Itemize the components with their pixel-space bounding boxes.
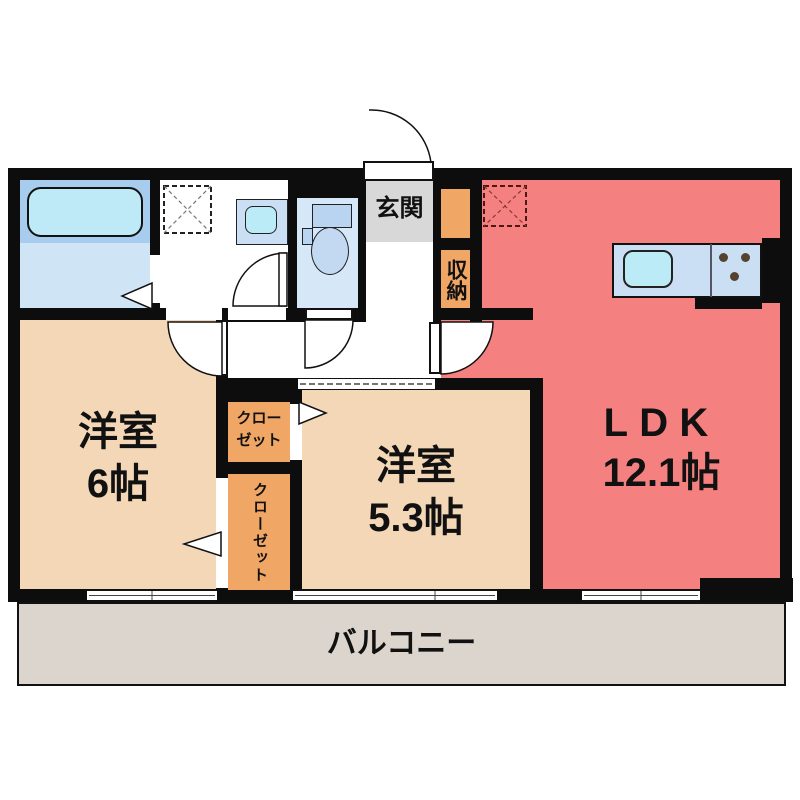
ldk-size: 12.1帖	[543, 448, 780, 498]
washing-machine-space	[164, 186, 211, 233]
door-arc-washroom	[233, 253, 286, 306]
door-arc-entrance	[369, 110, 431, 163]
floor-plan: 玄関 収納 クロー ゼット クローゼット 洋室 6帖 洋室 5.3帖 LDK 1…	[0, 0, 800, 800]
bedroom53-name: 洋室	[302, 440, 530, 492]
entrance-label: 玄関	[366, 195, 433, 224]
ldk-label: LDK 12.1帖	[543, 398, 780, 498]
closet-lower-label: クローゼット	[228, 478, 290, 588]
closet-upper-label: クロー ゼット	[228, 408, 290, 452]
balcony-label: バルコニー	[17, 626, 786, 662]
bedroom6-label: 洋室 6帖	[20, 406, 216, 510]
ldk-name: LDK	[543, 398, 780, 448]
refrigerator-space	[484, 186, 526, 226]
bedroom6-name: 洋室	[20, 406, 216, 458]
closet-upper-label-line2: ゼット	[228, 430, 290, 452]
window-glass-lines	[89, 591, 698, 600]
door-leaf-washroom	[279, 253, 287, 306]
door-arrow-bathroom	[122, 283, 152, 309]
bedroom53-size: 5.3帖	[302, 492, 530, 544]
door-arrow-closet-lower	[184, 532, 221, 556]
closet-upper-label-line1: クロー	[228, 408, 290, 430]
door-arc-toilet	[305, 320, 353, 368]
bedroom53-label: 洋室 5.3帖	[302, 440, 530, 544]
storage-label: 収納	[441, 252, 470, 308]
door-arc-bedroom6	[168, 322, 222, 376]
door-arc-ldk	[441, 322, 493, 374]
door-arrow-closet-upper	[299, 402, 326, 424]
bedroom6-size: 6帖	[20, 458, 216, 510]
